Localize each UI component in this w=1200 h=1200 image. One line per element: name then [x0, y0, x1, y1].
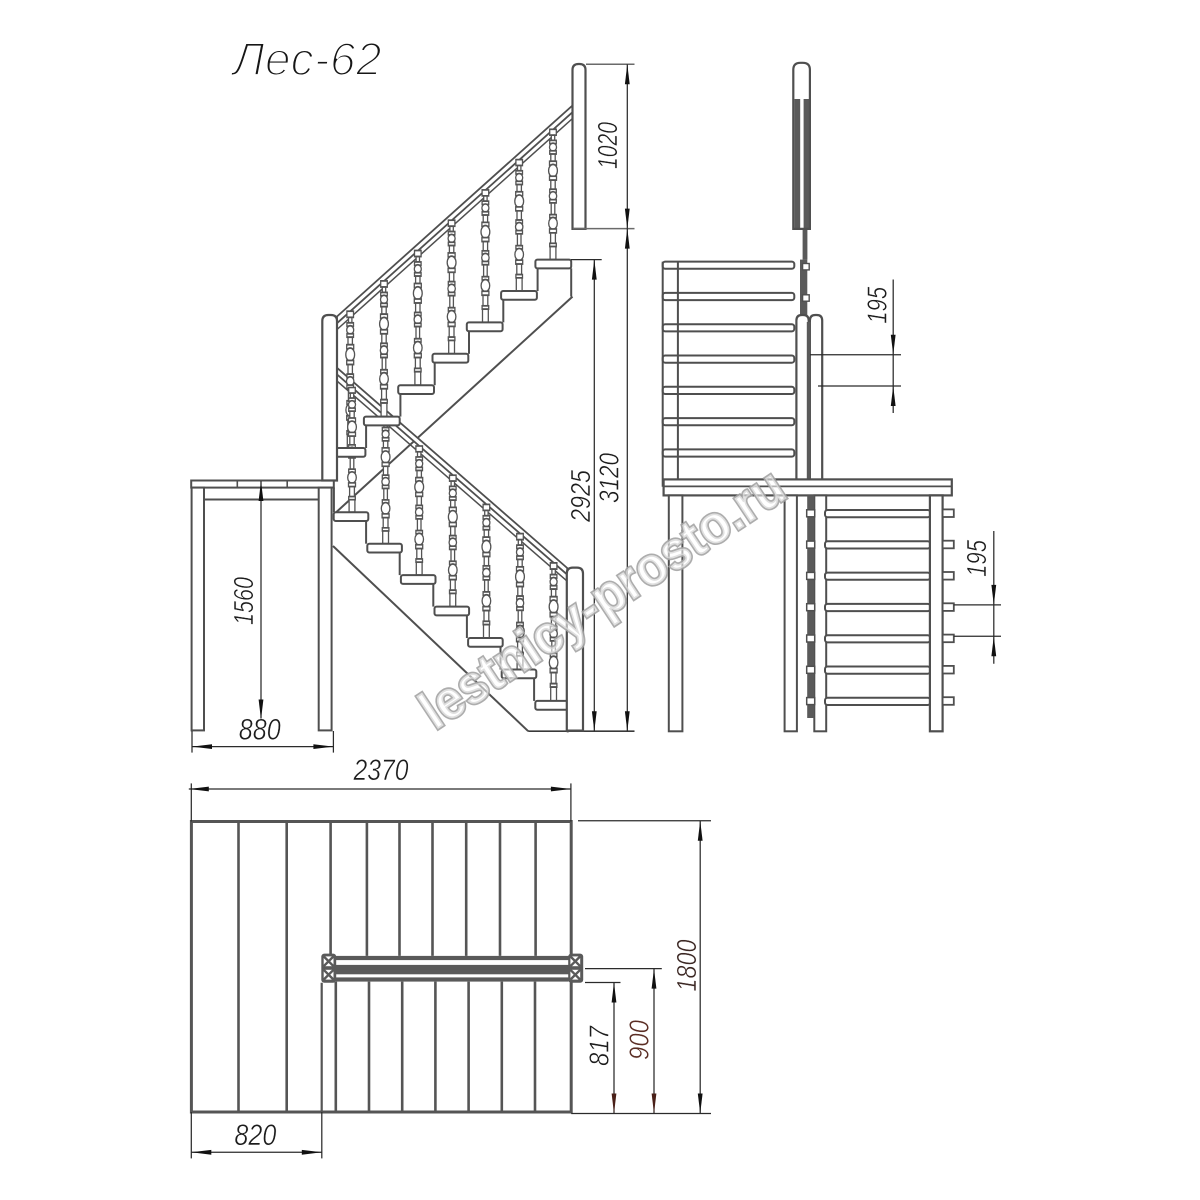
svg-text:2925: 2925 [565, 470, 596, 523]
svg-text:900: 900 [624, 1020, 655, 1060]
svg-text:880: 880 [239, 714, 281, 747]
svg-text:820: 820 [234, 1119, 276, 1152]
svg-text:Лес-62: Лес-62 [230, 33, 382, 85]
svg-text:1020: 1020 [592, 122, 623, 169]
svg-text:2370: 2370 [353, 754, 409, 787]
svg-text:195: 195 [862, 286, 893, 323]
svg-text:817: 817 [584, 1025, 615, 1066]
svg-text:1560: 1560 [228, 577, 259, 625]
svg-text:1800: 1800 [671, 939, 702, 991]
svg-text:3120: 3120 [594, 453, 625, 503]
svg-text:195: 195 [961, 540, 992, 577]
